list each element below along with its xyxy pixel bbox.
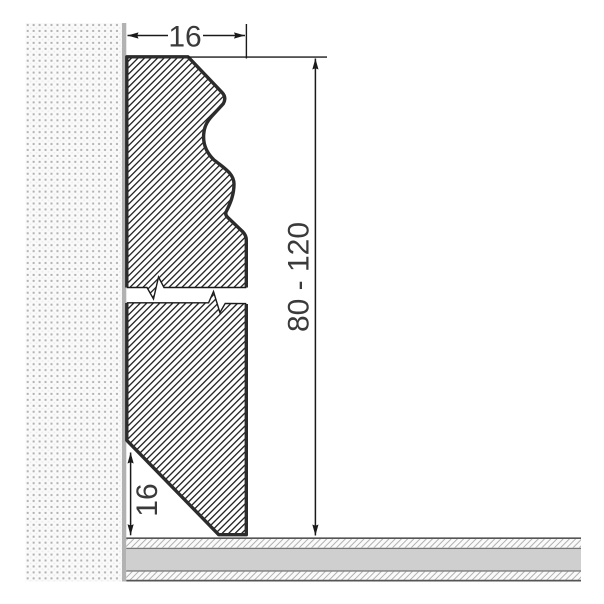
- svg-text:80 - 120: 80 - 120: [283, 222, 316, 332]
- svg-text:16: 16: [131, 483, 164, 516]
- svg-text:16: 16: [168, 21, 201, 54]
